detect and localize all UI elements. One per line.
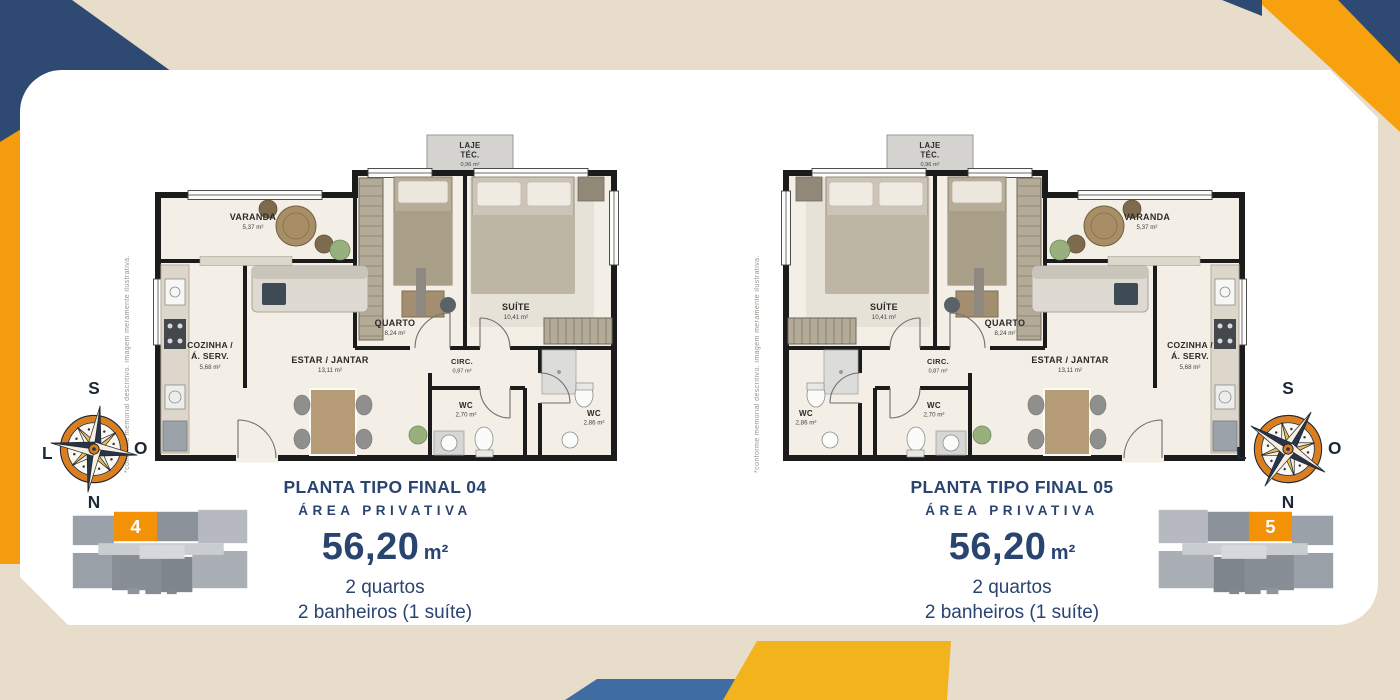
svg-text:0,96 m²: 0,96 m² [921,162,940,168]
svg-text:WC: WC [459,401,473,410]
floor-plan-svg: LAJETÉC.0,96 m²VARANDA5,37 m²QUARTO8,24 … [150,133,622,465]
svg-text:2,86 m²: 2,86 m² [584,420,605,427]
plan-area-unit: m² [1051,542,1075,564]
svg-text:10,41 m²: 10,41 m² [872,314,896,321]
svg-text:QUARTO: QUARTO [985,318,1026,328]
plan-title: PLANTA TIPO FINAL 05 [832,475,1192,499]
svg-text:CIRC.: CIRC. [451,357,473,366]
svg-text:Á. SERV.: Á. SERV. [191,351,229,361]
svg-text:5,68 m²: 5,68 m² [200,364,221,371]
svg-text:LAJE: LAJE [919,141,940,150]
svg-text:SUÍTE: SUÍTE [502,302,530,312]
svg-text:LAJE: LAJE [459,141,480,150]
svg-text:TÉC.: TÉC. [461,151,480,160]
building-key-plan: 4 [68,502,256,600]
floor-plan-final-04: LAJETÉC.0,96 m²VARANDA5,37 m²QUARTO8,24 … [150,133,622,465]
plan-bedrooms: 2 quartos [205,575,565,600]
plan-bedrooms: 2 quartos [832,575,1192,600]
plan-area: 56,20 m² [205,527,565,575]
svg-text:COZINHA /: COZINHA / [1167,340,1213,350]
plan-info-final-04: PLANTA TIPO FINAL 04 ÁREA PRIVATIVA 56,2… [205,475,565,625]
svg-text:Á. SERV.: Á. SERV. [1171,351,1209,361]
unit-number: 4 [130,516,141,537]
svg-text:2,70 m²: 2,70 m² [924,412,945,419]
svg-text:S: S [1282,378,1294,398]
svg-text:0,87 m²: 0,87 m² [929,369,948,375]
svg-text:2,86 m²: 2,86 m² [796,420,817,427]
svg-text:QUARTO: QUARTO [375,318,416,328]
plan-area: 56,20 m² [832,527,1192,575]
svg-text:13,11 m²: 13,11 m² [318,367,342,374]
svg-text:L: L [42,443,53,463]
svg-text:10,41 m²: 10,41 m² [504,314,528,321]
plan-bathrooms: 2 banheiros (1 suíte) [205,600,565,625]
svg-text:COZINHA /: COZINHA / [187,340,233,350]
svg-text:8,24 m²: 8,24 m² [385,330,406,337]
svg-text:VARANDA: VARANDA [230,212,277,222]
plan-bathrooms: 2 banheiros (1 suíte) [832,600,1192,625]
plan-info-final-05: PLANTA TIPO FINAL 05 ÁREA PRIVATIVA 56,2… [832,475,1192,625]
plan-subtitle: ÁREA PRIVATIVA [205,500,565,522]
svg-text:13,11 m²: 13,11 m² [1058,367,1082,374]
svg-text:2,70 m²: 2,70 m² [456,412,477,419]
decor-bottom-yellow [723,641,951,700]
svg-text:5,68 m²: 5,68 m² [1180,364,1201,371]
plan-area-value: 56,20 [949,526,1047,568]
compass-rose-svg: SONL [1232,378,1344,512]
svg-text:VARANDA: VARANDA [1124,212,1171,222]
decor-top-right-navy-sliver [1222,0,1262,16]
unit-number: 5 [1265,516,1275,537]
plan-area-value: 56,20 [322,526,420,568]
compass-rose-svg: SONL [38,378,150,512]
floor-plan-final-05: LAJETÉC.0,96 m²VARANDA5,37 m²QUARTO8,24 … [778,133,1250,465]
floor-plan-svg: LAJETÉC.0,96 m²VARANDA5,37 m²QUARTO8,24 … [778,133,1250,465]
compass-rose: SONL [1232,378,1344,512]
building-key-plan: 5 [1150,502,1338,600]
building-key-plan-svg: 4 [68,502,256,600]
compass-rose: SONL [38,378,150,512]
plan-subtitle: ÁREA PRIVATIVA [832,500,1192,522]
svg-text:TÉC.: TÉC. [921,151,940,160]
svg-text:5,37 m²: 5,37 m² [243,224,264,231]
decor-bottom-blue [565,679,745,700]
svg-text:WC: WC [927,401,941,410]
plan-title: PLANTA TIPO FINAL 04 [205,475,565,499]
svg-text:O: O [1328,438,1341,458]
disclaimer-text: *conforme memorial descritivo. imagem me… [754,305,766,473]
svg-text:5,37 m²: 5,37 m² [1137,224,1158,231]
svg-text:O: O [134,438,147,458]
svg-text:ESTAR / JANTAR: ESTAR / JANTAR [291,355,369,365]
svg-text:CIRC.: CIRC. [927,357,949,366]
svg-text:SUÍTE: SUÍTE [870,302,898,312]
svg-text:WC: WC [587,409,601,418]
svg-text:0,96 m²: 0,96 m² [461,162,480,168]
svg-text:L: L [1236,443,1247,463]
svg-text:8,24 m²: 8,24 m² [995,330,1016,337]
plan-area-unit: m² [424,542,448,564]
page-background: { "plans": [ { "title": "PLANTA TIPO FIN… [0,0,1400,700]
svg-text:ESTAR / JANTAR: ESTAR / JANTAR [1031,355,1109,365]
svg-text:0,87 m²: 0,87 m² [453,369,472,375]
svg-text:WC: WC [799,409,813,418]
svg-text:S: S [88,378,100,398]
content-card: LAJETÉC.0,96 m²VARANDA5,37 m²QUARTO8,24 … [20,70,1378,625]
building-key-plan-svg: 5 [1150,502,1338,600]
